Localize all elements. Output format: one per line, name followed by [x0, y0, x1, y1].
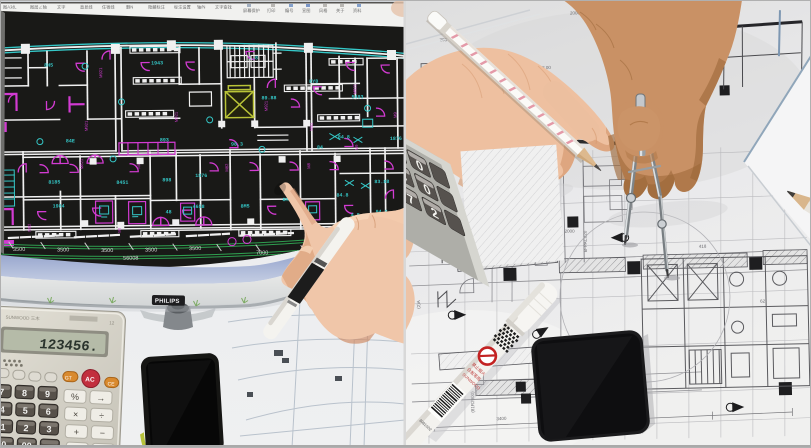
svg-text:1876: 1876 — [390, 136, 402, 142]
svg-text:8M5: 8M5 — [241, 203, 250, 209]
svg-text:3500: 3500 — [145, 247, 157, 253]
svg-text:8451: 8451 — [116, 180, 128, 186]
svg-text:6FPAC020: 6FPAC020 — [583, 230, 588, 252]
svg-text:AC: AC — [85, 376, 95, 383]
svg-text:−: − — [99, 428, 105, 438]
svg-text:M921: M921 — [352, 83, 357, 94]
svg-text:6: 6 — [46, 407, 51, 417]
svg-text:9: 9 — [45, 389, 50, 399]
svg-text:标注设置: 标注设置 — [174, 4, 191, 11]
svg-text:M9: M9 — [354, 144, 359, 151]
svg-text:3500: 3500 — [101, 248, 113, 254]
svg-text:84.8: 84.8 — [336, 192, 348, 198]
svg-text:(2)A: (2)A — [416, 300, 421, 309]
svg-text:资料: 资料 — [353, 7, 362, 14]
svg-text:×: × — [73, 409, 79, 419]
svg-text:89.88: 89.88 — [261, 95, 276, 101]
svg-text:直显线: 直显线 — [80, 4, 93, 10]
svg-text:删N: 删N — [126, 4, 133, 11]
svg-text:8H5: 8H5 — [44, 63, 53, 69]
svg-text:文字查找: 文字查找 — [215, 4, 233, 11]
svg-text:2: 2 — [23, 423, 28, 433]
svg-text:屏幕保护: 屏幕保护 — [243, 7, 260, 14]
svg-text:宣图: 宣图 — [302, 7, 310, 14]
svg-text:M921: M921 — [263, 100, 268, 111]
svg-text:2000: 2000 — [564, 229, 575, 234]
svg-text:62: 62 — [760, 299, 766, 304]
svg-text:CE: CE — [107, 381, 115, 387]
svg-text:图A对L: 图A对L — [3, 4, 17, 11]
svg-text:文字: 文字 — [57, 4, 65, 11]
svg-text:关于: 关于 — [336, 7, 344, 14]
svg-text:M9: M9 — [393, 111, 398, 118]
svg-text:123456.: 123456. — [38, 337, 99, 356]
svg-text:3500: 3500 — [189, 246, 201, 252]
svg-text:GT: GT — [65, 375, 72, 381]
svg-text:84E: 84E — [66, 138, 75, 144]
svg-text:KY8: KY8 — [309, 79, 318, 85]
svg-text:84: 84 — [317, 145, 323, 151]
svg-text:8: 8 — [22, 388, 27, 398]
svg-text:1.8: 1.8 — [249, 55, 258, 61]
svg-text:898: 898 — [162, 177, 171, 183]
svg-text:3500: 3500 — [57, 247, 69, 253]
svg-text:1876: 1876 — [195, 173, 207, 179]
svg-text:1984: 1984 — [53, 203, 65, 209]
svg-text:48: 48 — [166, 209, 172, 215]
svg-text:M92: M92 — [27, 223, 32, 232]
svg-text:M921: M921 — [174, 111, 179, 122]
svg-text:轴/N: 轴/N — [197, 4, 205, 11]
svg-text:M8: M8 — [306, 162, 311, 169]
svg-text:893: 893 — [160, 137, 169, 143]
svg-text:编号: 编号 — [285, 7, 293, 14]
svg-text:风格: 风格 — [319, 7, 328, 14]
svg-text:图层∠轴: 图层∠轴 — [30, 4, 47, 11]
svg-text:%: % — [71, 392, 79, 402]
svg-text:÷: ÷ — [99, 410, 104, 420]
svg-text:1943: 1943 — [151, 60, 163, 66]
svg-text:M921: M921 — [98, 67, 103, 78]
svg-text:84.8: 84.8 — [338, 134, 350, 140]
svg-text:12: 12 — [109, 320, 115, 325]
svg-text:5: 5 — [23, 406, 28, 416]
svg-text:7000: 7000 — [256, 250, 268, 256]
svg-text:56008: 56008 — [123, 256, 138, 262]
svg-text:打印: 打印 — [267, 7, 275, 14]
svg-text:3500: 3500 — [13, 247, 25, 253]
svg-text:住宿线: 住宿线 — [102, 4, 115, 11]
svg-text:隐藏标注: 隐藏标注 — [148, 4, 166, 11]
svg-text:4658: 4658 — [193, 204, 205, 210]
svg-text:3400: 3400 — [496, 416, 507, 421]
svg-text:3: 3 — [46, 424, 51, 434]
svg-text:→: → — [96, 393, 105, 403]
svg-text:PHILIPS: PHILIPS — [155, 299, 180, 305]
svg-text:418: 418 — [699, 244, 707, 249]
svg-text:M82: M82 — [224, 163, 229, 172]
svg-text:98.3: 98.3 — [231, 142, 243, 148]
svg-text:1: 1 — [0, 422, 5, 432]
svg-text:M921: M921 — [84, 120, 89, 131]
svg-text:8185: 8185 — [48, 179, 60, 185]
svg-text:83.88: 83.88 — [374, 179, 389, 185]
svg-text:M821: M821 — [79, 158, 84, 169]
svg-text:+: + — [74, 427, 80, 437]
